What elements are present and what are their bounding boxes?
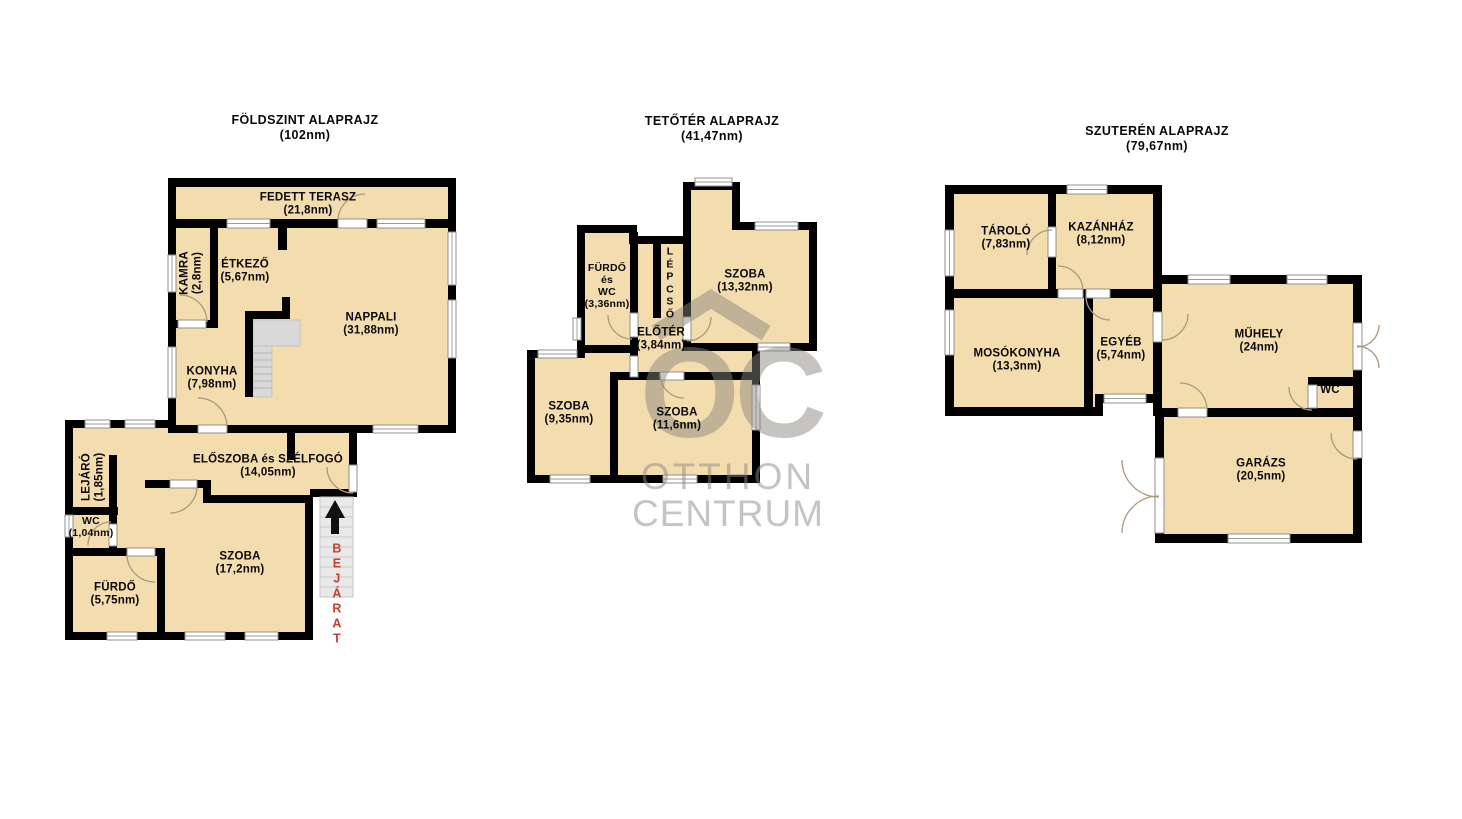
- watermark-line1: OTTHON: [641, 456, 815, 497]
- room-label-konyha: KONYHA (7,98nm): [186, 366, 237, 391]
- room-label-nappali: NAPPALI (31,88nm): [343, 312, 399, 337]
- basement-plan-title: SZUTERÉN ALAPRAJZ (79,67nm): [1085, 124, 1229, 154]
- plan-title-text: FÖLDSZINT ALAPRAJZ: [231, 113, 378, 128]
- room-label-garazs: GARÁZS (20,5nm): [1236, 458, 1286, 483]
- room-label-muhely: MŰHELY (24nm): [1235, 329, 1284, 354]
- plan-title-area: (102nm): [231, 128, 378, 143]
- watermark-line2: CENTRUM: [632, 493, 824, 534]
- room-label-szoba2-attic: SZOBA (9,35nm): [545, 401, 594, 426]
- room-label-lejaro: LEJÁRÓ (1,85nm): [81, 453, 106, 502]
- room-label-furdo-wc-attic: FÜRDŐ és WC (3,36nm): [585, 262, 630, 310]
- room-label-szoba-ground: SZOBA (17,2nm): [216, 551, 265, 576]
- room-label-kamra: KAMRA (2,8nm): [179, 251, 204, 295]
- entrance-label-bejarat: B E J Á R A T: [332, 542, 341, 647]
- room-label-wc-ground: WC (1,04nm): [69, 515, 114, 539]
- room-label-etkezo: ÉTKEZŐ (5,67nm): [221, 259, 270, 284]
- room-label-tarolo: TÁROLÓ (7,83nm): [981, 226, 1031, 251]
- room-label-szoba3-attic: SZOBA (11,6nm): [653, 407, 701, 432]
- room-label-egyeb: EGYÉB (5,74nm): [1097, 337, 1146, 362]
- room-label-kazanhaz: KAZÁNHÁZ (8,12nm): [1068, 222, 1133, 247]
- room-label-furdo-ground: FÜRDŐ (5,75nm): [91, 582, 140, 607]
- room-label-lepcso: L É P C S Ő: [666, 246, 674, 321]
- room-label-fedett-terasz: FEDETT TERASZ (21,8nm): [260, 192, 357, 217]
- room-label-wc-basement: WC: [1320, 384, 1340, 397]
- ground-plan-title: FÖLDSZINT ALAPRAJZ (102nm): [231, 113, 378, 143]
- room-label-eloszoba: ELŐSZOBA és SZÉLFOGÓ (14,05nm): [193, 454, 343, 479]
- floorplan-page: OC OTTHON CENTRUM FÖLDSZINT ALAPRAJZ (10…: [0, 0, 1462, 819]
- room-label-szoba1-attic: SZOBA (13,32nm): [717, 269, 773, 294]
- attic-plan-title: TETŐTÉR ALAPRAJZ (41,47nm): [645, 114, 779, 144]
- room-label-eloter: ELŐTÉR (3,84nm): [637, 327, 686, 352]
- room-label-mosokonyha: MOSÓKONYHA (13,3nm): [974, 348, 1061, 373]
